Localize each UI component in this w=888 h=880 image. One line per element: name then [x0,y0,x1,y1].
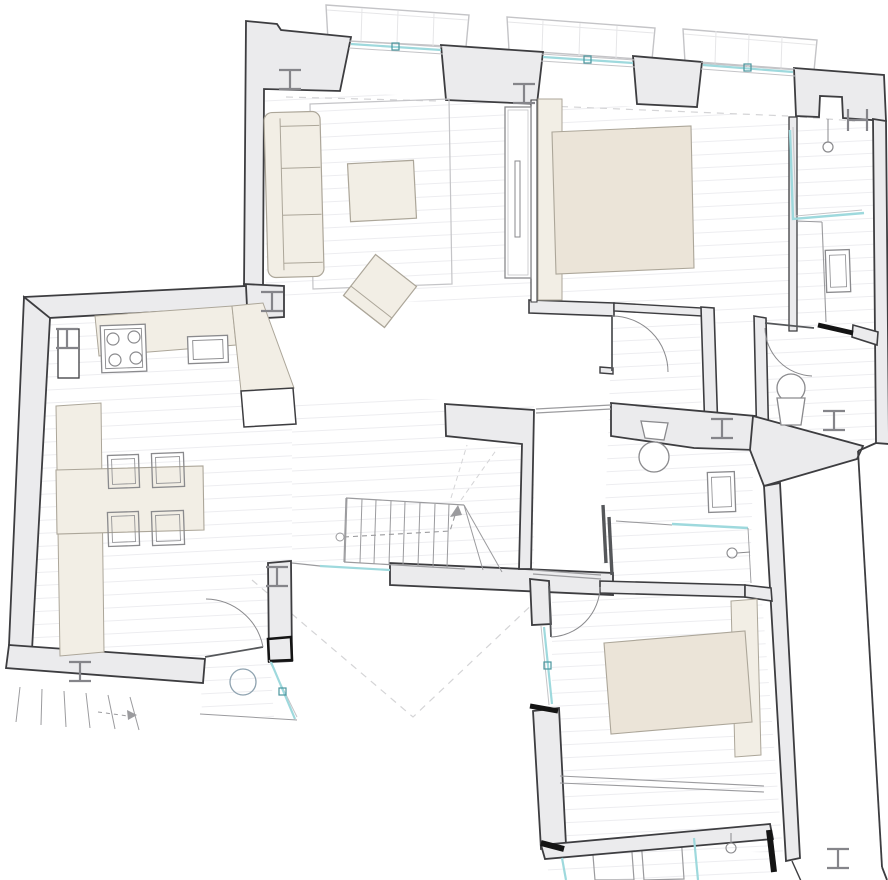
ext-stair-tread [86,693,90,728]
balcony-top-3-rail [684,34,816,45]
floor-hatch-stairhall [292,368,534,575]
terrace-table [230,669,256,695]
wall-bed1-door-stub [600,367,613,374]
glass-partition-hall-a [536,405,611,409]
sliding-door-leaf-a [603,505,606,563]
stair-tread [433,504,435,567]
hatch-line [537,111,790,124]
wall-kitchen-left [9,297,50,650]
hatch-line [602,542,754,550]
wall-hall-mass [611,403,755,450]
hatch-line [292,394,534,406]
boundary-right-foot [882,867,887,880]
hatch-line [200,703,274,707]
hatch-line [602,451,754,459]
balcony-grid [579,23,580,56]
stair-direction-start [336,533,344,541]
hatch-line [758,231,877,237]
stair-tread [389,501,391,565]
kitchen-stove [100,324,147,373]
hatch-line [546,807,771,818]
hatch-line [602,516,754,524]
hatch-line [292,485,534,497]
hatch-line [602,373,754,381]
shower-head [823,142,833,152]
hatch-line [758,400,877,406]
sliding-door-leaf-b [609,517,612,575]
toilet-bath2-tank [641,421,668,440]
wall-pier-2 [441,45,543,104]
hatch-line [758,166,877,172]
wall-partition-living-bed1 [531,100,537,302]
wall-bed2-top-right [745,585,772,601]
terrace-edge [200,714,297,720]
ext-stair-tread [108,695,115,729]
balcony-grid [616,26,617,58]
hatch-line [292,368,534,380]
hatch-line [546,859,771,870]
bed2-mattress [604,631,752,734]
bath2-shower-glass [672,524,748,528]
hatch-line [292,524,534,536]
hatch-line [758,374,877,380]
door-bed2-leaf [549,586,551,637]
boundary-bed2-foot [792,861,801,880]
coffee-table [348,160,417,221]
stair-tread [403,502,405,565]
hatch-line [758,244,877,250]
stair-tread [418,503,420,566]
wall-pier-3 [633,56,702,107]
projection-dashed-bedroom1 [548,106,788,116]
wall-bed2-top [600,581,745,597]
hatch-line [758,218,877,224]
wall-stair-south [390,563,613,595]
hatch-line [537,280,790,293]
hatch-line [758,192,877,198]
sofa [264,111,324,277]
hatch-line [602,568,754,576]
stair-tread [360,499,362,563]
door-entry-leaf [205,647,263,657]
tall-cabinet [58,329,79,378]
hatch-line [758,153,877,159]
hatch-line [292,498,534,510]
hatch-line [758,348,877,354]
floor-plan [0,0,888,880]
hatch-line [602,347,754,355]
wall-right-band [873,119,888,444]
hatch-line [292,446,534,458]
hatch-line [546,872,771,880]
hatch-line [292,381,534,393]
balcony-grid [361,8,362,42]
hatch-line [758,413,877,419]
hatch-line [758,270,877,276]
balcony-grid [715,31,716,64]
hatch-line [758,257,877,263]
hatch-line [602,555,754,563]
hatch-line [540,760,783,772]
wall-hook [445,404,534,569]
door-bed1-arc [612,316,668,372]
hatch-line [758,283,877,289]
wall-bottom-left [6,645,205,683]
hatch-line [758,296,877,302]
floor-hatch-bathroom1 [758,101,877,458]
ext-stair-tread [64,691,66,727]
hatch-line [292,472,534,484]
hatch-line [758,309,877,315]
wall-bed2-corner [530,579,551,625]
hatch-line [540,812,783,824]
hatch-line [292,511,534,523]
steel-column [823,411,845,430]
hatch-line [602,360,754,368]
hatch-line [602,529,754,537]
stair-upper-dashed [451,445,467,498]
wall-hall-mass-diagonal [750,416,863,486]
hatch-line [540,799,783,811]
hatch-line [602,464,754,472]
roof-slope-dashed-v [252,580,556,717]
hatch-line [758,140,877,146]
balcony-grid [397,11,398,44]
bed1-mattress [552,126,694,274]
bath2-drain-arm [737,552,750,553]
hatch-line [292,550,534,562]
window-glazing-terrace [271,662,295,719]
balcony-top-2-rail [508,22,654,33]
steel-column [827,849,849,868]
wall-bed2-left [533,708,566,849]
hatch-line [602,386,754,394]
wall-entry-pier-bold [268,637,292,661]
wall-black-threshold-bath1 [818,325,853,333]
ext-stair-tread [41,689,42,725]
hatch-line [758,179,877,185]
wardrobe-bed1 [505,107,531,278]
hatch-line [758,127,877,133]
hatch-line [758,361,877,367]
wall-bed2-right [764,483,800,861]
wall-hall-north [614,303,702,316]
floor-hatch-terrace [200,638,274,720]
glass-partition-hall-b [536,409,611,413]
ext-stair-dashed [98,712,128,716]
ext-stair-tread [16,687,20,722]
wall-bed1-bottom [529,300,614,316]
floor-plan-canvas [0,0,888,880]
kitchen-peninsula-end [241,388,296,427]
toilet-wc-tank [777,398,805,425]
hatch-line [200,664,274,668]
stair-direction-arrow [450,505,462,517]
toilet-bath2-bowl [639,442,669,472]
window-glazing-stair [320,566,390,570]
hatch-line [200,677,274,681]
wall-top-right-pier [794,68,886,121]
wall-bed2-bottom [541,824,773,859]
hatch-line [292,537,534,549]
hatch-line [292,459,534,471]
dining-table [56,466,204,534]
stair-tread [447,504,449,568]
hatch-line [758,387,877,393]
hatch-line [602,334,754,342]
stair-winder [464,505,483,570]
window-frame [292,563,320,566]
boundary-right-lower [858,451,882,867]
